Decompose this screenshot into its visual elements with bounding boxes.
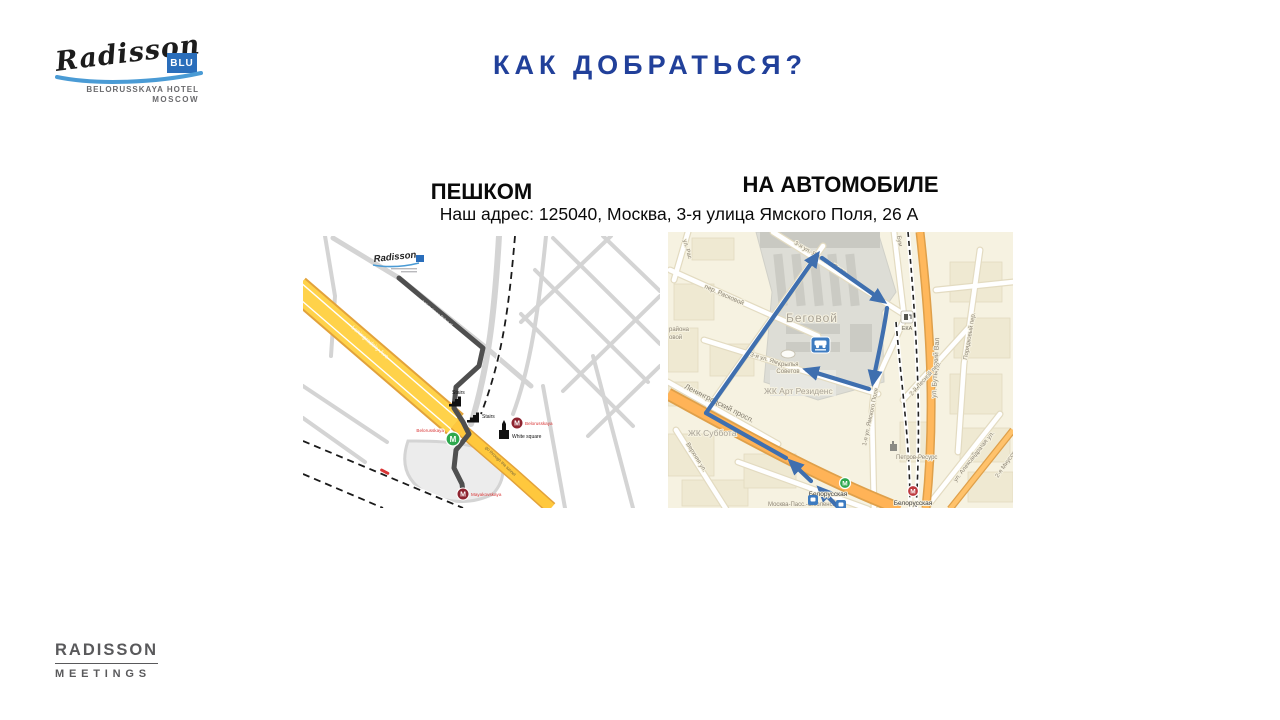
svg-text:M: M bbox=[514, 421, 520, 428]
hotel-marker-icon bbox=[811, 337, 830, 353]
radisson-meetings-logo: RADISSON MEETINGS bbox=[55, 641, 235, 680]
suburban-train-icon-1 bbox=[808, 495, 818, 505]
krylya-label-1: Крылья bbox=[777, 362, 798, 368]
metro-belorusskaya-red-icon: М bbox=[908, 486, 919, 497]
stairs-label-1: Stairs bbox=[452, 390, 465, 396]
walking-map-canvas: Leningradsky Ave go through the tunnel 3… bbox=[303, 236, 660, 508]
hotel-address: Наш адрес: 125040, Москва, 3-я улица Ямс… bbox=[303, 204, 1055, 225]
svg-text:M: M bbox=[460, 492, 466, 499]
logo-subline-hotel: BELORUSSKAYA HOTEL bbox=[77, 85, 199, 94]
stairs-label-2: Stairs bbox=[482, 414, 495, 420]
petrov-label: Петров-Ресурс bbox=[896, 455, 937, 461]
metro-red-station-label: Белорусская bbox=[894, 500, 933, 507]
krylya-label-2: Советов bbox=[776, 369, 799, 375]
white-square-label: White square bbox=[512, 434, 542, 440]
metro-green-label: Belorusskaya bbox=[416, 428, 444, 433]
gas-station-icon bbox=[901, 311, 913, 323]
rayona-label-2: овой bbox=[669, 334, 682, 341]
metro-belorusskaya-red: M bbox=[511, 417, 523, 429]
walk-section-heading: ПЕШКОМ bbox=[303, 179, 660, 205]
slide: Radisson BLU BELORUSSKAYA HOTEL MOSCOW К… bbox=[0, 0, 1280, 720]
zhk-subbota-label: ЖК Суббота bbox=[688, 428, 737, 438]
footer-radisson: RADISSON bbox=[55, 641, 158, 664]
logo-subline-city: MOSCOW bbox=[77, 95, 199, 104]
metro-belorusskaya-green-icon: М bbox=[840, 478, 851, 489]
district-label: Беговой bbox=[786, 311, 838, 325]
petrov-building-icon bbox=[890, 444, 897, 451]
metro-belorusskaya-green: M bbox=[446, 432, 460, 446]
rayona-label-1: района bbox=[669, 326, 690, 333]
metro-red2-label: Mayakovskaya bbox=[471, 492, 502, 497]
car-section-heading: НА АВТОМОБИЛЕ bbox=[668, 172, 1013, 198]
radisson-blu-logo: Radisson BLU BELORUSSKAYA HOTEL MOSCOW bbox=[55, 38, 225, 104]
svg-text:М: М bbox=[910, 489, 915, 496]
eka-label: ЕКА bbox=[902, 326, 913, 332]
stadium-icon bbox=[781, 350, 795, 358]
metro-red1-label: Belorusskaya bbox=[525, 421, 553, 426]
metro-mayakovskaya: M bbox=[457, 488, 469, 500]
zhk-art-label: ЖК Арт Резиденс bbox=[764, 386, 833, 396]
logo-swoosh-icon bbox=[55, 70, 205, 86]
driving-map-canvas: Беговой ЖК Арт Резиденс ЖК Суббота Крыль… bbox=[668, 232, 1013, 508]
walking-map: Leningradsky Ave go through the tunnel 3… bbox=[303, 236, 660, 508]
svg-text:М: М bbox=[842, 481, 847, 488]
moskva-pass-label: Москва-Пасс.-Смоленская bbox=[768, 502, 842, 508]
footer-meetings: MEETINGS bbox=[55, 668, 235, 680]
suburban-train-icon-2 bbox=[836, 500, 846, 508]
svg-text:M: M bbox=[450, 435, 457, 444]
page-title: КАК ДОБРАТЬСЯ? bbox=[340, 50, 960, 81]
driving-map: Беговой ЖК Арт Резиденс ЖК Суббота Крыль… bbox=[668, 232, 1013, 508]
